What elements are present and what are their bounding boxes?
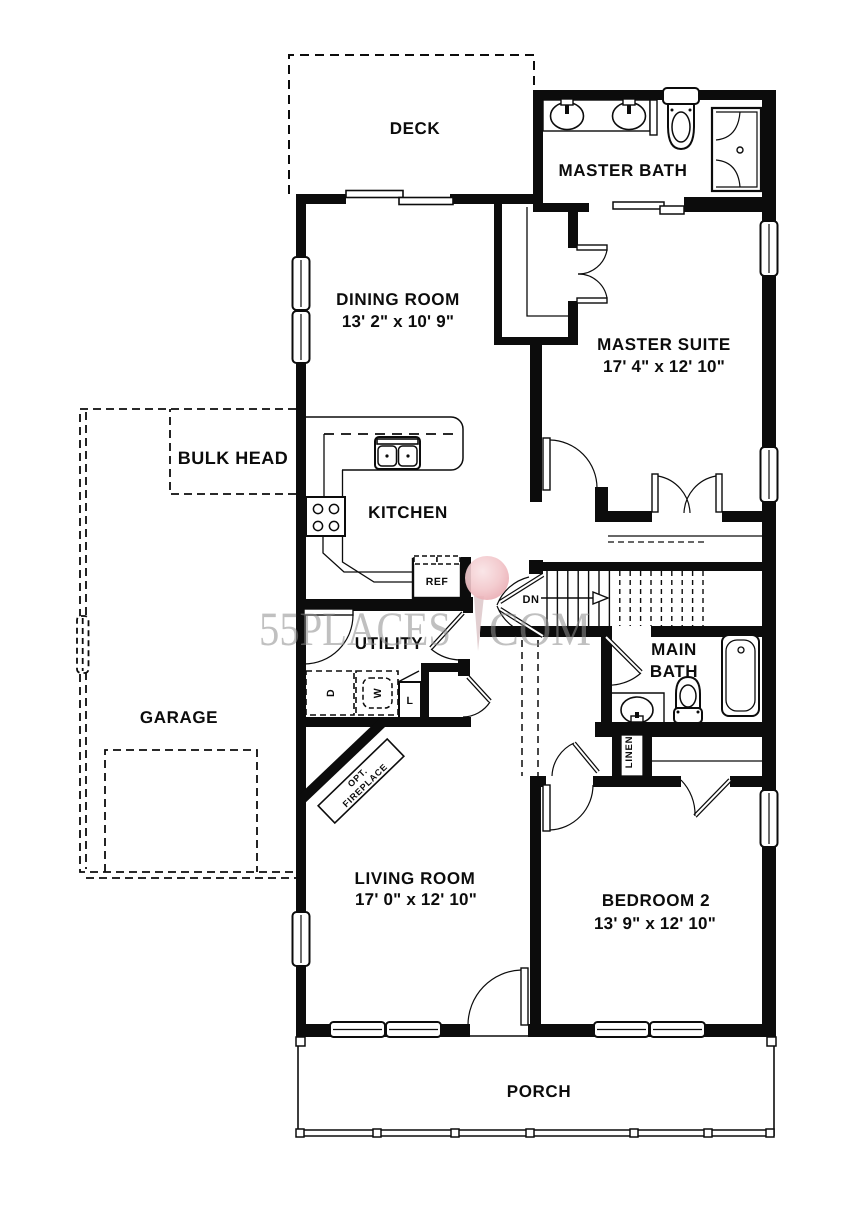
svg-text:LINEN: LINEN [624,736,635,769]
svg-text:COM: COM [489,603,591,656]
svg-text:MAIN: MAIN [651,640,697,659]
svg-text:L: L [407,695,414,707]
svg-text:MASTER BATH: MASTER BATH [558,161,687,180]
svg-text:D: D [325,689,337,697]
svg-text:55PLACES: 55PLACES [259,603,451,656]
svg-text:LIVING ROOM: LIVING ROOM [355,869,476,888]
svg-text:DECK: DECK [390,119,441,138]
svg-text:BEDROOM 2: BEDROOM 2 [602,891,710,910]
svg-text:BULK HEAD: BULK HEAD [178,448,289,468]
svg-text:17' 4" x 12' 10": 17' 4" x 12' 10" [603,357,725,376]
svg-text:PORCH: PORCH [507,1082,571,1101]
svg-text:MASTER SUITE: MASTER SUITE [597,335,731,354]
svg-text:DINING ROOM: DINING ROOM [336,290,460,309]
svg-text:REF: REF [426,576,449,588]
svg-text:KITCHEN: KITCHEN [368,503,448,522]
svg-text:13' 9" x 12' 10": 13' 9" x 12' 10" [594,914,716,933]
svg-text:GARAGE: GARAGE [140,708,218,727]
svg-text:W: W [372,688,384,698]
svg-text:13' 2" x 10' 9": 13' 2" x 10' 9" [342,312,454,331]
svg-text:17' 0" x 12' 10": 17' 0" x 12' 10" [355,890,477,909]
